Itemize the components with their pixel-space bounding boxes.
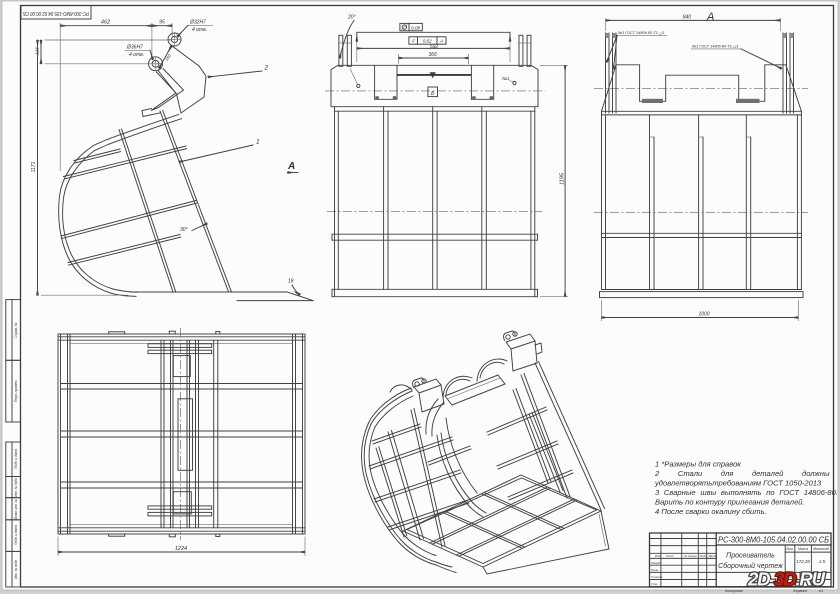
svg-text:Пров.: Пров.	[651, 568, 659, 572]
svg-text:№ докум.: № докум.	[684, 554, 697, 558]
svg-text:Т.контр.: Т.контр.	[651, 575, 663, 579]
svg-text:30°: 30°	[180, 227, 188, 233]
svg-text:Просеиватель: Просеиватель	[726, 553, 775, 560]
svg-text:Ø36Н7: Ø36Н7	[126, 45, 143, 51]
svg-text:Утв.: Утв.	[651, 582, 658, 586]
svg-text:95: 95	[159, 19, 165, 25]
svg-text:№1: №1	[502, 76, 510, 81]
svg-text:Б: Б	[431, 91, 435, 97]
svg-text:3 Сварные швы выполнять по ГОС: 3 Сварные швы выполнять по ГОСТ 14806-80…	[655, 488, 838, 497]
svg-text:1 *Размеры для справок: 1 *Размеры для справок	[655, 460, 741, 469]
svg-text:2 Стали для деталей должны: 2 Стали для деталей должны	[654, 469, 830, 478]
svg-text:840: 840	[683, 15, 692, 21]
svg-text:Лит.: Лит.	[785, 547, 794, 551]
svg-text:4 отв.: 4 отв.	[192, 27, 207, 33]
svg-text:Перв. примен.: Перв. примен.	[14, 380, 18, 403]
svg-text:Лист: Лист	[665, 554, 674, 558]
svg-text:Копировал: Копировал	[725, 589, 743, 593]
svg-text:2: 2	[264, 65, 269, 72]
svg-text:Инв. № подл.: Инв. № подл.	[14, 559, 18, 579]
svg-text:18: 18	[288, 279, 294, 285]
svg-text:366: 366	[429, 52, 438, 58]
svg-text:Подп. и дата: Подп. и дата	[14, 449, 18, 469]
svg-text:Подп. и дата: Подп. и дата	[14, 525, 18, 545]
svg-text:№1 ГОСТ 14806-80-Т1-△3: №1 ГОСТ 14806-80-Т1-△3	[618, 31, 665, 35]
svg-text:А: А	[287, 161, 295, 172]
svg-text:Разраб.: Разраб.	[651, 561, 662, 565]
svg-text:4 После сварки окалину сбить.: 4 После сварки окалину сбить.	[655, 507, 767, 516]
svg-text:1171: 1171	[31, 161, 37, 172]
svg-text:4 отв.: 4 отв.	[129, 52, 144, 58]
svg-text:Инв. № дубл.: Инв. № дубл.	[14, 477, 18, 497]
svg-text:Подп.: Подп.	[700, 554, 708, 558]
svg-text:А: А	[706, 11, 714, 23]
svg-text:Изм.: Изм.	[655, 554, 662, 558]
svg-text:0,02: 0,02	[423, 39, 432, 44]
svg-text:№1 ГОСТ 14806-80-Т1-△3: №1 ГОСТ 14806-80-Т1-△3	[692, 45, 739, 49]
svg-text:Масса: Масса	[798, 547, 808, 551]
svg-text:2D-3D.RU: 2D-3D.RU	[747, 569, 826, 590]
svg-text:1:5: 1:5	[819, 559, 826, 564]
svg-text:удовлетворятьтребованиям ГОСТ: удовлетворятьтребованиям ГОСТ 1050-2013	[654, 479, 822, 488]
svg-text:172,28: 172,28	[796, 559, 810, 564]
svg-text:1000: 1000	[698, 311, 709, 317]
svg-text:Взам. инв. №: Взам. инв. №	[14, 499, 18, 519]
svg-text:1195: 1195	[559, 172, 565, 185]
svg-text:1224: 1224	[175, 546, 187, 552]
svg-text:РС-300-8МО-105.04.02.00.00 СБ: РС-300-8МО-105.04.02.00.00 СБ	[22, 10, 89, 16]
svg-text:Масштаб: Масштаб	[813, 547, 829, 551]
svg-text:Справ. №: Справ. №	[14, 322, 18, 338]
svg-text:0,08: 0,08	[411, 26, 420, 31]
svg-text:РС-300-8М0-105.04.02.00.00 СБ: РС-300-8М0-105.04.02.00.00 СБ	[718, 536, 829, 545]
svg-text:20°: 20°	[347, 15, 356, 21]
svg-text:592: 592	[430, 44, 439, 50]
svg-text:А: А	[439, 39, 443, 44]
svg-text:Ø32Н7: Ø32Н7	[189, 20, 206, 26]
svg-text:462: 462	[101, 19, 110, 25]
svg-text:Варить по контуру прилегания д: Варить по контуру прилегания деталей.	[655, 498, 805, 507]
svg-text:Дата: Дата	[708, 554, 717, 558]
svg-text:1: 1	[256, 139, 260, 146]
